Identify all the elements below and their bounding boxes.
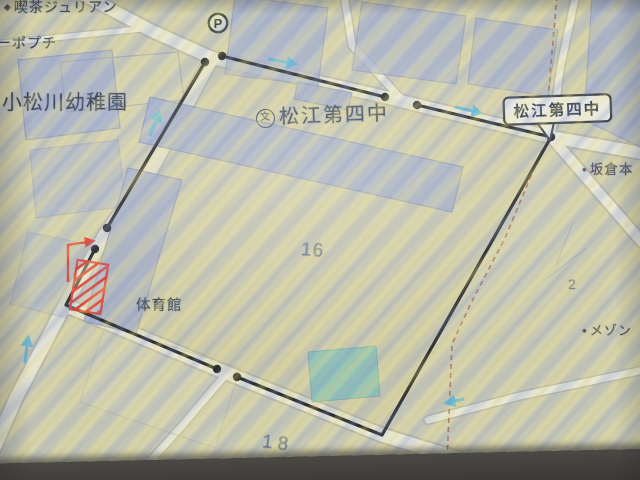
label-block16: 16 [300,240,324,262]
parcel-lines [548,222,586,278]
label-kindergarten: 小松川幼稚園 [2,93,128,114]
map-photo: P 松江第四中 ◆ 喫茶ジュリアン ーポプチ 小松川幼稚園 文 松江第四中 ● … [0,0,640,480]
label-school-text: 松江第四中 [279,104,390,129]
school-map-symbol-icon: 文 [256,109,276,129]
building [30,140,126,218]
route-vertex-dot [233,373,241,381]
building [584,0,640,148]
route-vertex-dot [91,245,99,253]
label-sakakura: ● 坂倉本 [582,163,633,177]
label-maison-text: メゾン [590,324,632,338]
label-block2-text: 2 [568,277,577,292]
poi-diamond-icon: ◆ [4,3,12,12]
label-shop-partial-text: ーポプチ [0,36,57,51]
label-block18-text: 18 [261,432,294,456]
highlight-marker-hatched [70,260,108,314]
poi-dot-icon: ● [582,327,588,335]
label-cafe: ◆ 喫茶ジュリアン [4,0,117,15]
route-vertex-dot [413,101,421,109]
label-gym-text: 体育館 [136,299,183,314]
label-sakakura-text: 坂倉本 [590,163,634,177]
road [428,370,640,420]
label-maison: ● メゾン [582,324,632,338]
route-vertex-dot [103,224,111,232]
building [468,18,558,96]
parking-icon-letter: P [214,16,223,31]
route-vertex-dot [213,365,221,373]
label-block16-text: 16 [300,240,324,262]
poi-dot-icon: ● [582,166,588,174]
label-block18: 18 [261,432,294,456]
parking-icon: P [209,14,227,32]
route-vertex-dot [218,52,226,60]
label-gym: 体育館 [136,299,183,314]
building [352,2,466,84]
label-cafe-text: 喫茶ジュリアン [14,0,117,15]
route-vertex-dot [201,58,209,66]
label-kindergarten-text: 小松川幼稚園 [2,93,128,114]
route-vertex-dot [381,93,389,101]
label-block2: 2 [568,277,577,292]
traffic-direction-arrow [446,399,464,403]
label-shop-partial: ーポプチ [0,36,57,51]
